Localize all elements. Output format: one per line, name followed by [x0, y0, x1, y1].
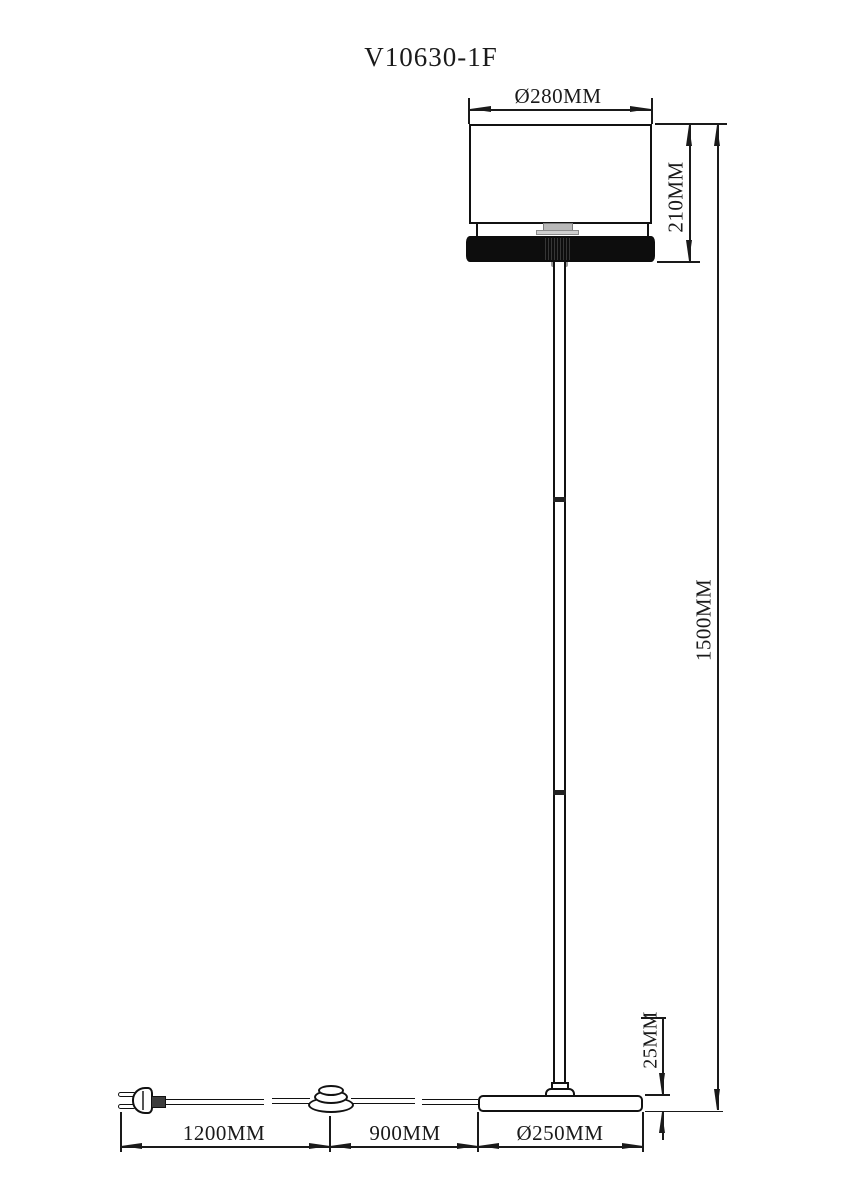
dim-line-total-height: [717, 125, 719, 1110]
label-switch-to-base: 900MM: [335, 1121, 475, 1146]
arrowhead-right-icon: [630, 106, 651, 112]
ext-line-shade-right: [651, 98, 653, 124]
arrowhead-left-icon: [121, 1143, 142, 1149]
plug-ferrule: [151, 1096, 166, 1108]
arrowhead-up-icon: [714, 125, 720, 146]
arrowhead-down-icon: [686, 240, 692, 261]
label-plug-to-switch: 1200MM: [154, 1121, 294, 1146]
bulb-socket-plate: [536, 230, 579, 235]
dim-line-bottom: [121, 1146, 643, 1148]
lamp-base: [478, 1095, 643, 1112]
cord-segment-1: [166, 1099, 264, 1105]
arrowhead-up-icon: [686, 125, 692, 146]
diffuser-band-texture: [545, 238, 571, 260]
cord-segment-2: [272, 1098, 310, 1104]
arrowhead-right-icon: [309, 1143, 330, 1149]
ext-line-ground: [645, 1111, 723, 1113]
label-base-thickness: 25MM: [640, 1011, 663, 1069]
lamp-shade: [469, 124, 652, 224]
label-total-height: 1500MM: [692, 579, 717, 661]
label-base-diameter: Ø250MM: [490, 1121, 630, 1146]
arrowhead-up-icon: [659, 1112, 665, 1133]
label-shade-height: 210MM: [664, 161, 689, 232]
label-shade-diameter: Ø280MM: [488, 84, 628, 109]
ext-line-base-top: [645, 1094, 670, 1096]
foot-switch-button: [318, 1085, 344, 1096]
dim-line-shade-diameter: [470, 109, 651, 111]
cord-segment-3: [351, 1098, 415, 1104]
lamp-pole: [553, 262, 566, 1084]
arrowhead-down-icon: [659, 1073, 665, 1094]
pole-joint-lower: [553, 790, 566, 795]
drawing-canvas: V10630-1F Ø280MM 210MM: [0, 0, 848, 1200]
cord-segment-4: [422, 1099, 478, 1105]
pole-joint-upper: [553, 497, 566, 502]
drawing-title: V10630-1F: [7, 42, 848, 73]
plug-inner-line: [142, 1091, 144, 1110]
arrowhead-down-icon: [714, 1089, 720, 1110]
ext-line-band-bottom: [657, 261, 700, 263]
